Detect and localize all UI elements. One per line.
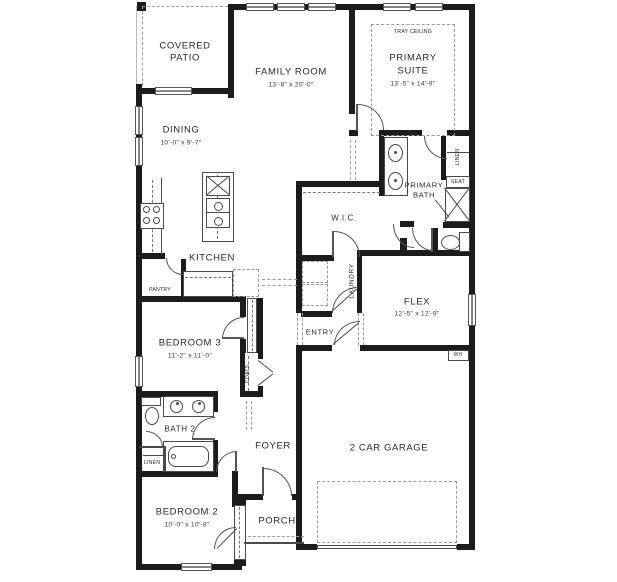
room-dims-bedroom2: 10'-0" x 10'-8" [164, 522, 209, 529]
door-swing-linen2 [146, 431, 163, 447]
wall [240, 391, 263, 397]
room-label-primary-bath: PRIMARY [405, 181, 444, 190]
label-linen-primary: LINEN [455, 149, 461, 165]
garage-door [317, 481, 457, 543]
burner [143, 206, 150, 213]
window [181, 563, 212, 571]
wall [257, 298, 263, 353]
room-dims-dining: 10'-0" x 9'-7" [160, 140, 201, 147]
room-dims-family-room: 13'-8" x 20'-0" [268, 82, 313, 89]
porch-edge [244, 542, 304, 544]
window [383, 3, 411, 11]
door-leaf [192, 438, 215, 440]
opening-dash [297, 313, 298, 345]
wall [296, 345, 332, 351]
room-label-bedroom2: BEDROOM 2 [156, 507, 218, 518]
wall [349, 4, 355, 114]
linen-shelf [143, 455, 163, 456]
range-burner [214, 217, 223, 226]
label-water-heater: WH [454, 352, 463, 358]
faucet [394, 151, 397, 154]
wall [292, 494, 302, 500]
wall [296, 544, 317, 550]
window [468, 294, 476, 326]
burner [153, 217, 160, 224]
opening-dash [262, 279, 297, 280]
wall [301, 311, 332, 317]
door-swing-pantry [166, 258, 183, 275]
faucet [198, 402, 201, 405]
door-swing-primary-bath [424, 136, 447, 159]
room-dims-bedroom3: 11'-2" x 11'-0" [168, 353, 212, 360]
bifold-door [258, 360, 274, 373]
garage-door-header [317, 545, 457, 549]
wall [457, 544, 475, 550]
toilet-tank [141, 397, 161, 406]
room-label-foyer: FOYER [255, 441, 291, 452]
opening-dash [251, 401, 252, 430]
wall [238, 494, 263, 500]
burner [153, 206, 160, 213]
closet-dash [252, 300, 253, 351]
room-label-porch: PORCH [258, 516, 295, 527]
wall [357, 250, 475, 256]
room-dims-primary-suite: 13'-5" x 14'-9" [390, 81, 435, 88]
room-dims-flex: 12'-5" x 12'-9" [394, 311, 439, 318]
room-label-covered-patio: COVERED [159, 41, 210, 52]
door-leaf [222, 337, 244, 339]
patio-dashed-edge [142, 6, 228, 7]
door-leaf [356, 104, 358, 131]
counter [183, 271, 233, 297]
opening-dash [355, 140, 356, 180]
door-swing-bath-hall [393, 224, 414, 248]
opening-dash [262, 285, 297, 286]
wall [469, 4, 475, 550]
door-swing-front-door [263, 468, 292, 496]
room-label-dining: DINING [163, 125, 200, 136]
patio-dashed-edge [142, 6, 143, 86]
faucet [394, 179, 397, 182]
closet-rod [303, 192, 380, 193]
refrigerator [233, 269, 259, 297]
opening-dash [350, 140, 351, 180]
room-label-entry: ENTRY [306, 328, 335, 337]
burner [143, 217, 150, 224]
floor-plan: COVERED PATIO FAMILY ROOM 13'-8" x 20'-0… [0, 0, 617, 582]
wall [228, 4, 234, 98]
patio-slab-edge [136, 6, 137, 84]
room-label-family-room: FAMILY ROOM [255, 67, 327, 78]
door-swing-bedroom3 [222, 317, 244, 339]
room-label-primary-suite: PRIMARY [389, 53, 436, 64]
window [246, 3, 274, 11]
room-label-garage: 2 CAR GARAGE [350, 443, 428, 454]
window [135, 137, 143, 166]
opening-dash [363, 313, 364, 345]
range-divider [206, 212, 230, 213]
room-label-bedroom3: BEDROOM 3 [159, 338, 221, 349]
room-label-kitchen: KITCHEN [189, 253, 235, 264]
door-leaf [431, 228, 433, 252]
label-seat: SEAT [451, 179, 465, 185]
label-tray-ceiling: TRAY CEILING [394, 29, 432, 35]
wall [433, 228, 438, 255]
room-label-primary-suite: SUITE [398, 66, 429, 77]
bifold-door [258, 373, 274, 386]
wall [240, 296, 246, 317]
dryer [302, 284, 328, 306]
range-burner [214, 202, 223, 211]
window [308, 3, 336, 11]
room-label-wic: W.I.C. [331, 214, 356, 223]
wall [258, 353, 263, 359]
door-swing-wic [334, 231, 360, 257]
faucet [176, 402, 179, 405]
room-label-covered-patio: PATIO [170, 53, 200, 64]
window [135, 106, 143, 135]
door-leaf [235, 451, 237, 472]
wall [443, 222, 475, 228]
washer [302, 261, 328, 283]
room-label-flex: FLEX [404, 297, 430, 308]
window-centerline [239, 507, 240, 558]
room-label-pantry: PANTRY [149, 287, 171, 293]
door-swing-bedroom2 [216, 451, 237, 472]
toilet-bowl [145, 407, 159, 425]
door-leaf [262, 467, 264, 496]
window [135, 356, 143, 387]
porch-dashed-edge [248, 536, 304, 537]
toilet-bowl [441, 235, 460, 250]
opening-dash [246, 401, 247, 430]
window [415, 3, 443, 11]
window [155, 87, 192, 95]
door-swing-water-closet [412, 228, 433, 251]
closet-wall [164, 446, 166, 472]
counter-dash [185, 277, 231, 278]
wall [240, 339, 246, 353]
door-leaf [332, 231, 334, 257]
toilet-tank [459, 232, 470, 252]
opening-dash [302, 313, 303, 345]
tub-drain [171, 454, 176, 459]
label-coats: COATS [245, 365, 251, 383]
window [277, 3, 305, 11]
wall [296, 181, 384, 187]
wall [296, 345, 302, 550]
room-label-bath2: BATH 2 [164, 425, 195, 434]
room-label-laundry: LAUNDRY [349, 263, 356, 298]
room-label-primary-bath: BATH [413, 191, 435, 200]
label-linen-bath2: LINEN [144, 460, 160, 466]
